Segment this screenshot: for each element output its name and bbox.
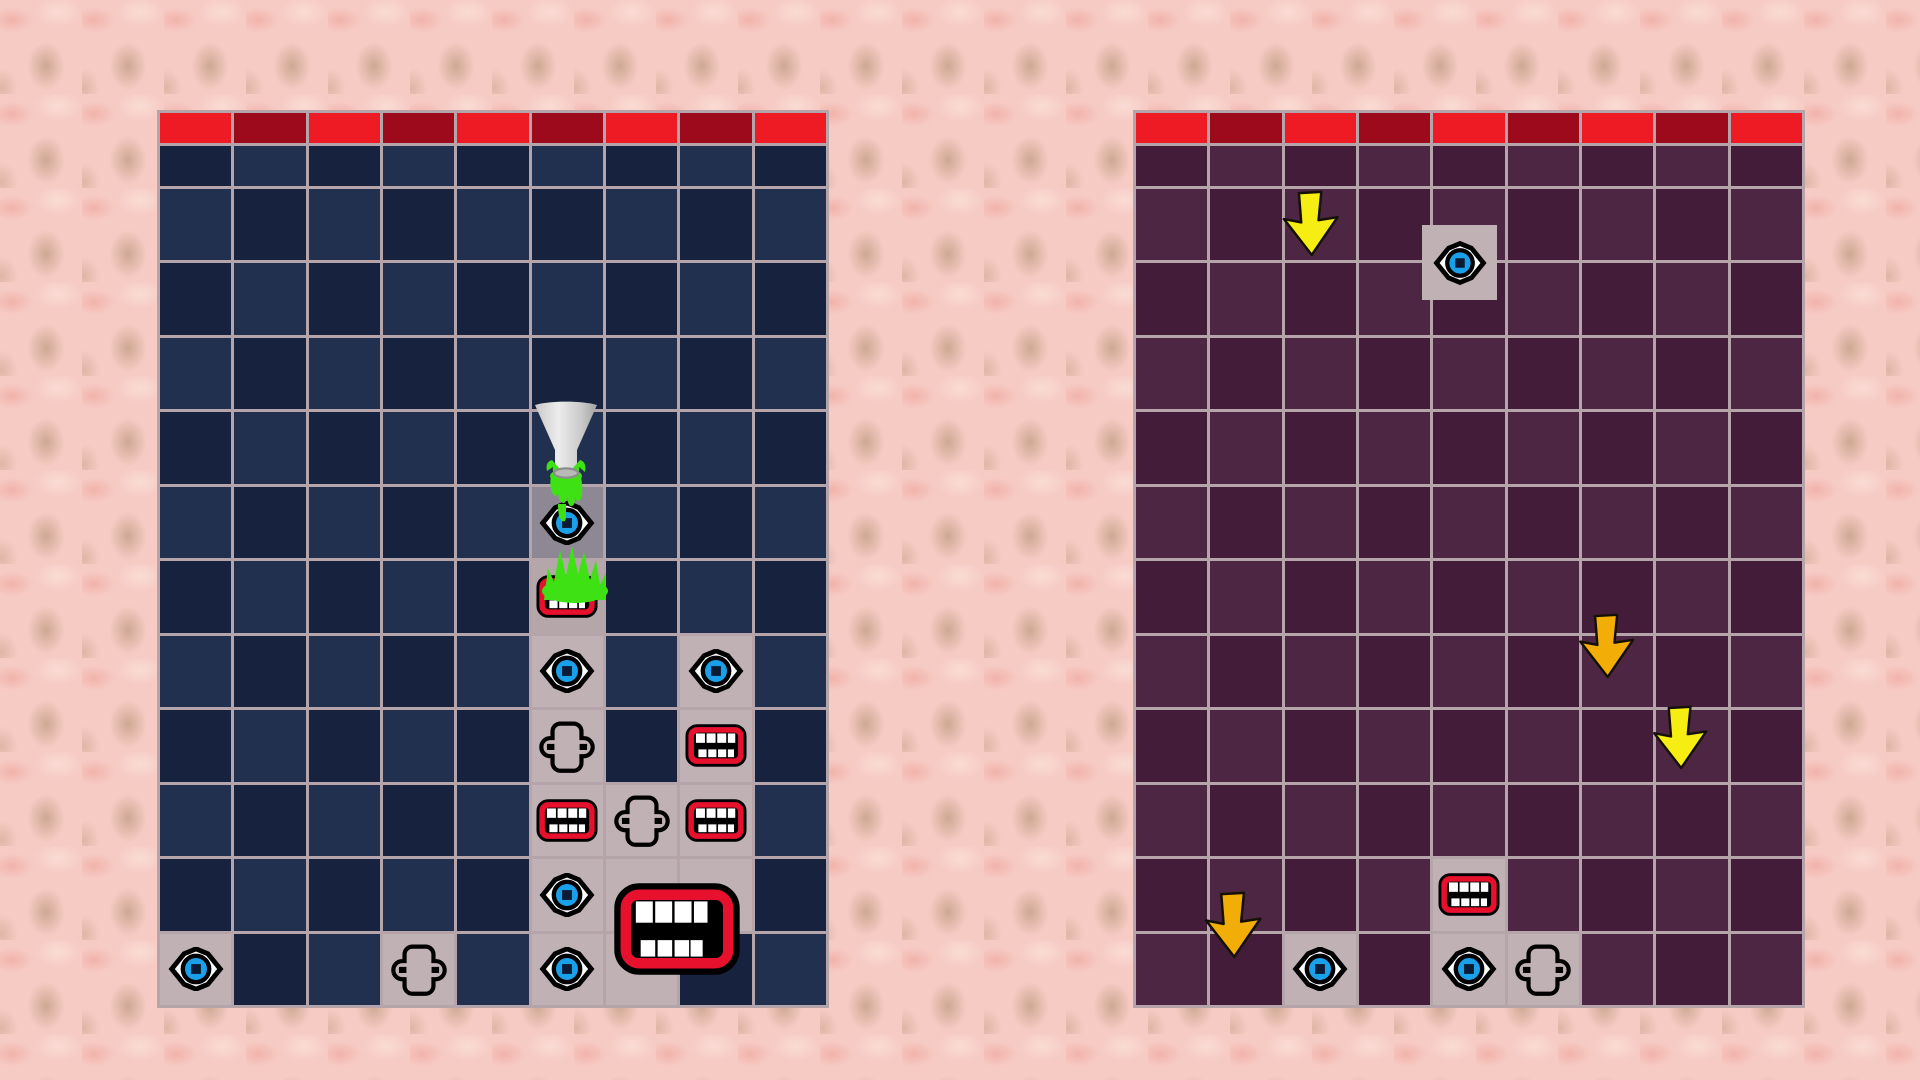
down-arrow-icon[interactable]: [1201, 891, 1265, 960]
board-cell[interactable]: [1433, 785, 1504, 856]
board-cell[interactable]: [309, 859, 380, 930]
board-cell[interactable]: [1508, 636, 1579, 707]
board-cell[interactable]: [755, 859, 826, 930]
board-cell[interactable]: [1285, 785, 1356, 856]
board-cell[interactable]: [532, 710, 603, 781]
board-cell[interactable]: [532, 189, 603, 260]
board-header-cell: [755, 113, 826, 143]
board-header-cell: [1656, 113, 1727, 143]
board-cell[interactable]: [1285, 263, 1356, 334]
board-cell[interactable]: [606, 487, 677, 558]
board-cell[interactable]: [1656, 189, 1727, 260]
board-cell[interactable]: [1359, 785, 1430, 856]
board-cell[interactable]: [383, 146, 454, 186]
mouth-icon: [1438, 873, 1500, 916]
nose-icon: [614, 792, 670, 848]
board-cell[interactable]: [1136, 859, 1207, 930]
board-cell[interactable]: [1285, 710, 1356, 781]
mouth-icon: [685, 724, 747, 767]
board-cell[interactable]: [1582, 785, 1653, 856]
board-cell[interactable]: [1433, 710, 1504, 781]
board-cell[interactable]: [1731, 710, 1802, 781]
board-cell[interactable]: [457, 146, 528, 186]
board-cell[interactable]: [1285, 146, 1356, 186]
eye-icon: [536, 873, 598, 917]
down-arrow-icon[interactable]: [1650, 705, 1710, 771]
board-cell[interactable]: [755, 146, 826, 186]
board-cell[interactable]: [532, 934, 603, 1005]
board-cell[interactable]: [1582, 189, 1653, 260]
board-cell[interactable]: [606, 561, 677, 632]
board-cell[interactable]: [1210, 636, 1281, 707]
board-header-cell: [1285, 113, 1356, 143]
right-board: [1133, 110, 1805, 1008]
board-cell[interactable]: [160, 412, 231, 483]
board-cell[interactable]: [160, 338, 231, 409]
board-cell[interactable]: [1433, 859, 1504, 930]
board-cell[interactable]: [606, 412, 677, 483]
board-cell[interactable]: [1731, 487, 1802, 558]
funnel-icon[interactable]: [527, 400, 605, 528]
board-cell[interactable]: [1136, 785, 1207, 856]
board-cell[interactable]: [234, 189, 305, 260]
board-cell[interactable]: [160, 710, 231, 781]
nose-icon: [539, 718, 595, 774]
board-cell[interactable]: [1359, 710, 1430, 781]
board-cell[interactable]: [1136, 561, 1207, 632]
board-cell[interactable]: [309, 934, 380, 1005]
board-cell[interactable]: [1210, 487, 1281, 558]
board-cell[interactable]: [383, 710, 454, 781]
mouth-icon: [685, 799, 747, 842]
board-cell[interactable]: [1731, 636, 1802, 707]
board-cell[interactable]: [1433, 636, 1504, 707]
board-cell[interactable]: [1136, 189, 1207, 260]
board-cell[interactable]: [1359, 338, 1430, 409]
board-cell[interactable]: [755, 934, 826, 1005]
board-cell[interactable]: [755, 263, 826, 334]
board-cell[interactable]: [1359, 412, 1430, 483]
board-cell[interactable]: [680, 412, 751, 483]
board-cell[interactable]: [457, 934, 528, 1005]
board-cell[interactable]: [234, 785, 305, 856]
eye-icon: [1430, 241, 1490, 285]
board-cell[interactable]: [234, 859, 305, 930]
board-cell[interactable]: [1210, 785, 1281, 856]
board-cell[interactable]: [309, 561, 380, 632]
board-cell[interactable]: [160, 785, 231, 856]
board-cell[interactable]: [1285, 561, 1356, 632]
board-cell[interactable]: [755, 561, 826, 632]
board-cell[interactable]: [1508, 859, 1579, 930]
board-header-cell: [234, 113, 305, 143]
board-cell[interactable]: [1359, 859, 1430, 930]
board-cell[interactable]: [1285, 338, 1356, 409]
board-cell[interactable]: [1582, 487, 1653, 558]
board-cell[interactable]: [1433, 412, 1504, 483]
board-cell[interactable]: [309, 146, 380, 186]
board-cell[interactable]: [1136, 263, 1207, 334]
board-cell[interactable]: [1359, 487, 1430, 558]
board-header-cell: [1508, 113, 1579, 143]
nose-icon: [391, 941, 447, 997]
board-cell[interactable]: [1433, 338, 1504, 409]
board-cell[interactable]: [1136, 934, 1207, 1005]
board-cell[interactable]: [234, 338, 305, 409]
board-cell[interactable]: [755, 487, 826, 558]
board-cell[interactable]: [234, 561, 305, 632]
board-header-cell: [1433, 113, 1504, 143]
board-header-cell: [1582, 113, 1653, 143]
board-cell[interactable]: [1359, 561, 1430, 632]
board-cell[interactable]: [680, 785, 751, 856]
board-cell[interactable]: [457, 636, 528, 707]
board-cell[interactable]: [532, 785, 603, 856]
board-cell[interactable]: [160, 487, 231, 558]
board-cell[interactable]: [1136, 146, 1207, 186]
board-cell[interactable]: [1508, 189, 1579, 260]
board-cell[interactable]: [383, 338, 454, 409]
board-cell[interactable]: [680, 487, 751, 558]
board-cell[interactable]: [160, 561, 231, 632]
board-cell[interactable]: [1136, 487, 1207, 558]
board-cell[interactable]: [1508, 785, 1579, 856]
board-cell[interactable]: [1656, 146, 1727, 186]
board-cell[interactable]: [1285, 859, 1356, 930]
board-cell[interactable]: [1210, 710, 1281, 781]
board-header-cell: [606, 113, 677, 143]
board-cell[interactable]: [1508, 710, 1579, 781]
board-cell[interactable]: [532, 636, 603, 707]
board-cell[interactable]: [383, 412, 454, 483]
board-header-cell: [160, 113, 231, 143]
down-arrow-icon[interactable]: [1575, 613, 1638, 680]
board-cell[interactable]: [1582, 338, 1653, 409]
board-cell[interactable]: [606, 189, 677, 260]
board-cell[interactable]: [1582, 934, 1653, 1005]
board-cell[interactable]: [1656, 934, 1727, 1005]
board-cell[interactable]: [680, 146, 751, 186]
board-cell[interactable]: [1210, 338, 1281, 409]
board-cell[interactable]: [1656, 338, 1727, 409]
board-cell[interactable]: [160, 189, 231, 260]
board-cell[interactable]: [457, 189, 528, 260]
board-cell[interactable]: [755, 338, 826, 409]
board-cell[interactable]: [1656, 263, 1727, 334]
board-cell[interactable]: [755, 189, 826, 260]
board-cell[interactable]: [1359, 636, 1430, 707]
board-cell[interactable]: [234, 412, 305, 483]
board-cell[interactable]: [234, 146, 305, 186]
board-cell[interactable]: [1359, 263, 1430, 334]
board-cell[interactable]: [1656, 561, 1727, 632]
board-header-cell: [457, 113, 528, 143]
board-cell[interactable]: [1210, 561, 1281, 632]
board-cell[interactable]: [383, 189, 454, 260]
board-cell[interactable]: [1285, 636, 1356, 707]
board-cell[interactable]: [309, 487, 380, 558]
board-cell[interactable]: [755, 636, 826, 707]
eye-icon: [536, 947, 598, 991]
board-header-cell: [532, 113, 603, 143]
board-cell[interactable]: [1582, 859, 1653, 930]
board-cell[interactable]: [309, 412, 380, 483]
board-cell[interactable]: [1731, 934, 1802, 1005]
board-cell[interactable]: [1359, 189, 1430, 260]
board-cell[interactable]: [532, 338, 603, 409]
board-cell[interactable]: [1433, 561, 1504, 632]
board-cell[interactable]: [606, 710, 677, 781]
board-cell[interactable]: [606, 338, 677, 409]
board-cell[interactable]: [309, 785, 380, 856]
board-header-cell: [1359, 113, 1430, 143]
eye-icon: [165, 947, 227, 991]
board-cell[interactable]: [160, 636, 231, 707]
board-header-cell: [1136, 113, 1207, 143]
board-header-cell: [1210, 113, 1281, 143]
board-cell[interactable]: [383, 263, 454, 334]
board-cell[interactable]: [457, 785, 528, 856]
board-cell[interactable]: [606, 636, 677, 707]
board-cell[interactable]: [755, 710, 826, 781]
board-header-cell: [1731, 113, 1802, 143]
board-cell[interactable]: [755, 785, 826, 856]
board-header-cell: [383, 113, 454, 143]
board-cell[interactable]: [383, 561, 454, 632]
board-cell[interactable]: [1731, 338, 1802, 409]
board-cell[interactable]: [1359, 934, 1430, 1005]
board-cell[interactable]: [1508, 561, 1579, 632]
board-cell[interactable]: [383, 636, 454, 707]
board-cell[interactable]: [309, 263, 380, 334]
board-cell[interactable]: [1508, 412, 1579, 483]
board-cell[interactable]: [1731, 263, 1802, 334]
board-cell[interactable]: [755, 412, 826, 483]
board-cell[interactable]: [1433, 934, 1504, 1005]
board-cell[interactable]: [1582, 146, 1653, 186]
board-cell[interactable]: [1136, 636, 1207, 707]
board-cell[interactable]: [383, 487, 454, 558]
board-cell[interactable]: [383, 785, 454, 856]
board-cell[interactable]: [606, 263, 677, 334]
board-cell[interactable]: [1508, 263, 1579, 334]
board-cell[interactable]: [457, 561, 528, 632]
board-cell[interactable]: [1656, 785, 1727, 856]
board-cell[interactable]: [1210, 146, 1281, 186]
eye-icon: [685, 649, 747, 693]
board-cell[interactable]: [1210, 263, 1281, 334]
board-cell[interactable]: [606, 146, 677, 186]
board-cell[interactable]: [309, 710, 380, 781]
board-cell[interactable]: [1210, 412, 1281, 483]
down-arrow-icon[interactable]: [1278, 190, 1343, 258]
board-cell[interactable]: [532, 146, 603, 186]
board-cell[interactable]: [606, 785, 677, 856]
board-cell[interactable]: [1136, 338, 1207, 409]
board-cell[interactable]: [457, 859, 528, 930]
board-cell[interactable]: [1731, 189, 1802, 260]
board-cell[interactable]: [1359, 146, 1430, 186]
board-cell[interactable]: [1508, 487, 1579, 558]
left-board: [157, 110, 829, 1008]
board-cell[interactable]: [680, 338, 751, 409]
board-cell[interactable]: [1433, 487, 1504, 558]
board-cell[interactable]: [160, 146, 231, 186]
board-cell[interactable]: [1508, 338, 1579, 409]
mouth-icon: [536, 799, 598, 842]
board-cell[interactable]: [1285, 487, 1356, 558]
board-cell[interactable]: [457, 487, 528, 558]
board-cell[interactable]: [457, 263, 528, 334]
board-cell[interactable]: [1433, 146, 1504, 186]
nose-icon: [1515, 941, 1571, 997]
board-cell[interactable]: [1582, 412, 1653, 483]
board-cell[interactable]: [309, 338, 380, 409]
board-cell[interactable]: [160, 934, 231, 1005]
board-cell[interactable]: [234, 487, 305, 558]
board-cell[interactable]: [680, 189, 751, 260]
board-cell[interactable]: [680, 710, 751, 781]
board-cell[interactable]: [234, 710, 305, 781]
board-cell[interactable]: [532, 263, 603, 334]
board-header-cell: [680, 113, 751, 143]
board-cell[interactable]: [309, 636, 380, 707]
board-cell[interactable]: [1656, 412, 1727, 483]
board-cell[interactable]: [1731, 785, 1802, 856]
eye-icon: [536, 649, 598, 693]
board-cell[interactable]: [160, 859, 231, 930]
board-cell[interactable]: [1136, 412, 1207, 483]
board-cell[interactable]: [1210, 189, 1281, 260]
board-cell[interactable]: [680, 263, 751, 334]
board-cell[interactable]: [1656, 636, 1727, 707]
board-cell[interactable]: [1508, 934, 1579, 1005]
board-cell[interactable]: [309, 189, 380, 260]
board-cell[interactable]: [234, 636, 305, 707]
board-cell[interactable]: [383, 934, 454, 1005]
board-cell[interactable]: [457, 412, 528, 483]
board-cell[interactable]: [680, 561, 751, 632]
board-cell[interactable]: [1656, 859, 1727, 930]
board-cell[interactable]: [1731, 561, 1802, 632]
slime-splash-icon: [538, 542, 612, 604]
board-cell[interactable]: [234, 263, 305, 334]
board-header-cell: [309, 113, 380, 143]
board-cell[interactable]: [1582, 710, 1653, 781]
board-cell[interactable]: [457, 338, 528, 409]
board-cell[interactable]: [680, 636, 751, 707]
game-stage: [0, 0, 1920, 1080]
board-cell[interactable]: [160, 263, 231, 334]
board-cell[interactable]: [234, 934, 305, 1005]
eye-icon: [1289, 947, 1351, 991]
board-cell[interactable]: [1136, 710, 1207, 781]
board-cell[interactable]: [1508, 146, 1579, 186]
board-cell[interactable]: [457, 710, 528, 781]
board-cell[interactable]: [1285, 412, 1356, 483]
board-cell[interactable]: [1731, 146, 1802, 186]
board-cell[interactable]: [383, 859, 454, 930]
eye-icon: [1438, 947, 1500, 991]
board-cell[interactable]: [532, 859, 603, 930]
board-cell[interactable]: [1582, 263, 1653, 334]
big-mouth-icon: [612, 883, 742, 975]
board-cell[interactable]: [1731, 859, 1802, 930]
board-cell[interactable]: [1285, 934, 1356, 1005]
falling-eye-piece[interactable]: [1422, 225, 1497, 300]
board-cell[interactable]: [1731, 412, 1802, 483]
board-cell[interactable]: [1656, 487, 1727, 558]
